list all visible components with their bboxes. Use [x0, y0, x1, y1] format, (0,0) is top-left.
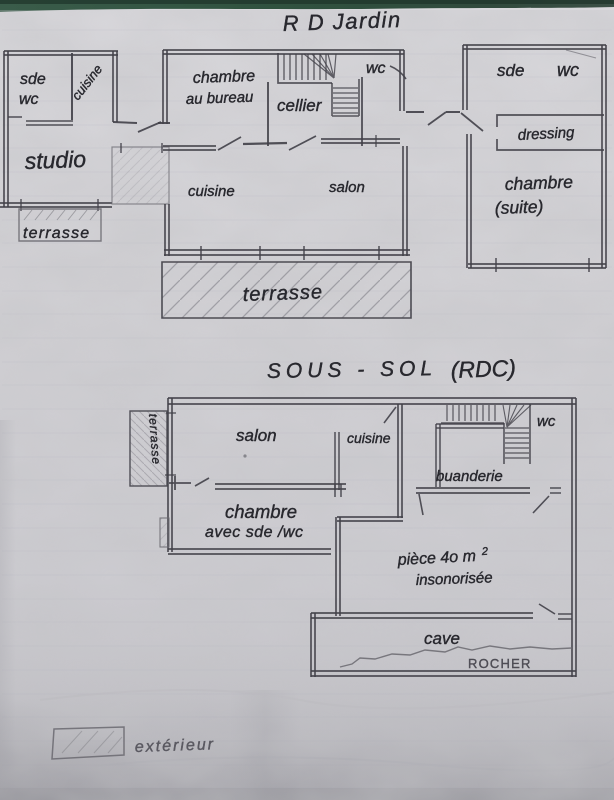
svg-text:ROCHER: ROCHER	[468, 656, 532, 671]
svg-text:chambre: chambre	[504, 172, 573, 194]
svg-text:cellier: cellier	[277, 96, 323, 115]
svg-text:2: 2	[481, 546, 489, 558]
svg-text:salon: salon	[329, 179, 365, 196]
svg-text:cuisine: cuisine	[188, 183, 235, 200]
svg-text:wc: wc	[557, 60, 579, 80]
svg-text:SOUS - SOL: SOUS - SOL	[267, 357, 438, 383]
svg-text:au bureau: au bureau	[186, 89, 255, 108]
svg-text:dressing: dressing	[517, 124, 575, 144]
svg-text:(suite): (suite)	[494, 196, 543, 218]
svg-text:chambre: chambre	[193, 68, 256, 87]
svg-text:R D Jardin: R D Jardin	[282, 7, 402, 36]
svg-text:wc: wc	[19, 91, 39, 108]
svg-text:terrasse: terrasse	[23, 225, 90, 242]
svg-text:cave: cave	[424, 629, 460, 648]
svg-text:extérieur: extérieur	[135, 736, 216, 756]
svg-text:sde: sde	[20, 71, 46, 88]
svg-text:insonorisée: insonorisée	[416, 569, 493, 589]
svg-text:sde: sde	[497, 61, 524, 80]
svg-text:wc: wc	[366, 60, 386, 77]
svg-text:cuisine: cuisine	[347, 430, 391, 446]
svg-text:studio: studio	[24, 146, 86, 174]
svg-text:buanderie: buanderie	[436, 468, 503, 485]
svg-text:salon: salon	[236, 426, 277, 445]
svg-text:terrasse: terrasse	[242, 281, 323, 306]
svg-text:chambre: chambre	[225, 501, 297, 522]
svg-text:wc: wc	[537, 413, 556, 430]
svg-text:(RDC): (RDC)	[450, 355, 516, 383]
svg-text:avec sde /wc: avec sde /wc	[205, 524, 303, 541]
